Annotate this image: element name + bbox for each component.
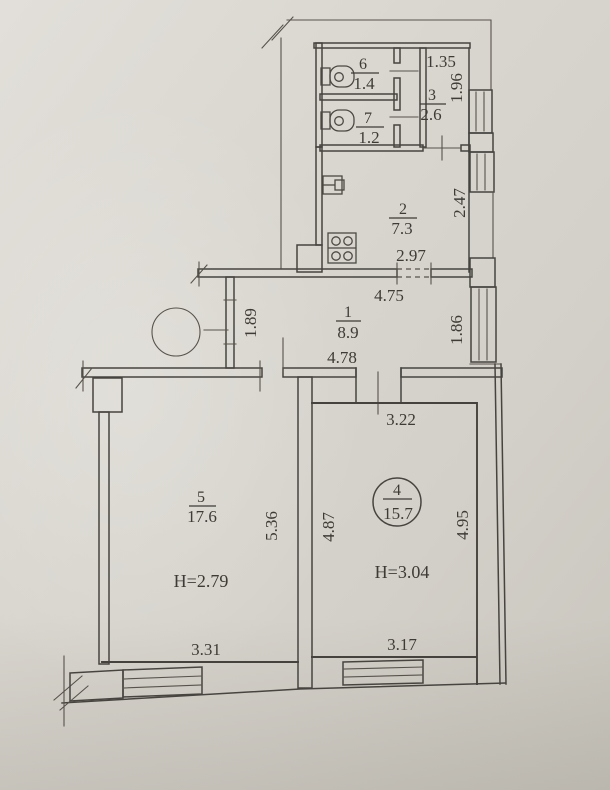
room-4-area: 15.7 [383,504,413,523]
room-3-area: 2.6 [420,105,441,124]
dim-room5-right: 5.36 [262,511,281,541]
room-7-number: 7 [364,110,372,127]
dim-hall-top: 4.75 [374,286,404,305]
dim-room3-top: 1.35 [426,52,456,71]
floor-plan-photo: 6 1.4 7 1.2 1.35 3 2.6 1.96 2 7.3 2.97 2… [0,0,610,790]
floor-plan-svg: 6 1.4 7 1.2 1.35 3 2.6 1.96 2 7.3 2.97 2… [0,0,610,790]
room-4-number: 4 [393,482,401,499]
room-5-ceiling-height: H=2.79 [174,571,229,591]
room-1-number: 1 [344,304,352,321]
room-5-area: 17.6 [187,507,217,526]
dim-room4-right: 4.95 [453,510,472,540]
dim-hall-left: 1.89 [241,308,260,338]
room-6-number: 6 [359,56,367,73]
dim-hall-right: 1.86 [447,315,466,345]
room-4-ceiling-height: H=3.04 [375,562,430,582]
dim-room5-bottom: 3.31 [191,640,221,659]
room-1-area: 8.9 [337,323,358,342]
dim-room3-right: 1.96 [447,73,466,103]
room-7-area: 1.2 [358,128,379,147]
room-5-number: 5 [197,489,205,506]
dim-kitchen-bottom: 2.97 [396,246,426,265]
dim-room4-left: 4.87 [319,512,338,542]
dim-room4-bottom: 3.17 [387,635,417,654]
dim-kitchen-right: 2.47 [450,188,469,218]
room-6-area: 1.4 [353,74,375,93]
dim-room4-top: 3.22 [386,410,416,429]
dim-hall-bottom: 4.78 [327,348,357,367]
room-3-number: 3 [428,87,436,104]
room-2-number: 2 [399,201,407,218]
room-2-area: 7.3 [391,219,412,238]
